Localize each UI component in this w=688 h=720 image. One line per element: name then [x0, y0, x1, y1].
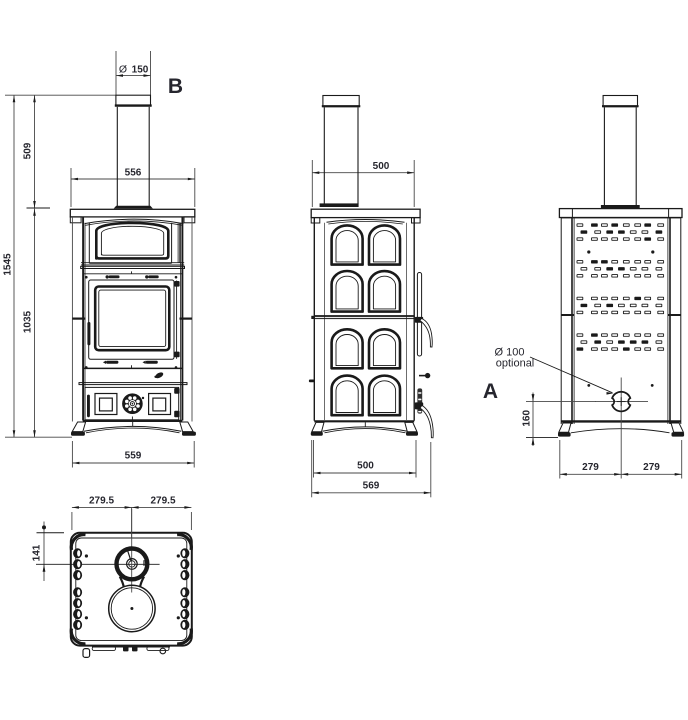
svg-text:569: 569 — [363, 480, 380, 491]
svg-text:141: 141 — [32, 544, 43, 561]
svg-text:A: A — [483, 380, 498, 403]
svg-text:Ø: Ø — [119, 64, 127, 76]
svg-text:optional: optional — [496, 358, 535, 370]
svg-text:509: 509 — [23, 142, 34, 159]
svg-text:556: 556 — [125, 167, 142, 178]
svg-text:279: 279 — [582, 462, 599, 473]
svg-text:279.5: 279.5 — [89, 496, 114, 507]
svg-text:500: 500 — [373, 161, 390, 172]
svg-text:1035: 1035 — [23, 310, 34, 333]
svg-text:1545: 1545 — [3, 253, 14, 276]
svg-text:559: 559 — [125, 451, 142, 462]
svg-text:150: 150 — [132, 64, 149, 75]
svg-text:B: B — [168, 75, 183, 98]
svg-text:500: 500 — [357, 461, 374, 472]
svg-text:279.5: 279.5 — [150, 496, 175, 507]
svg-text:160: 160 — [522, 410, 533, 427]
svg-text:279: 279 — [643, 462, 660, 473]
